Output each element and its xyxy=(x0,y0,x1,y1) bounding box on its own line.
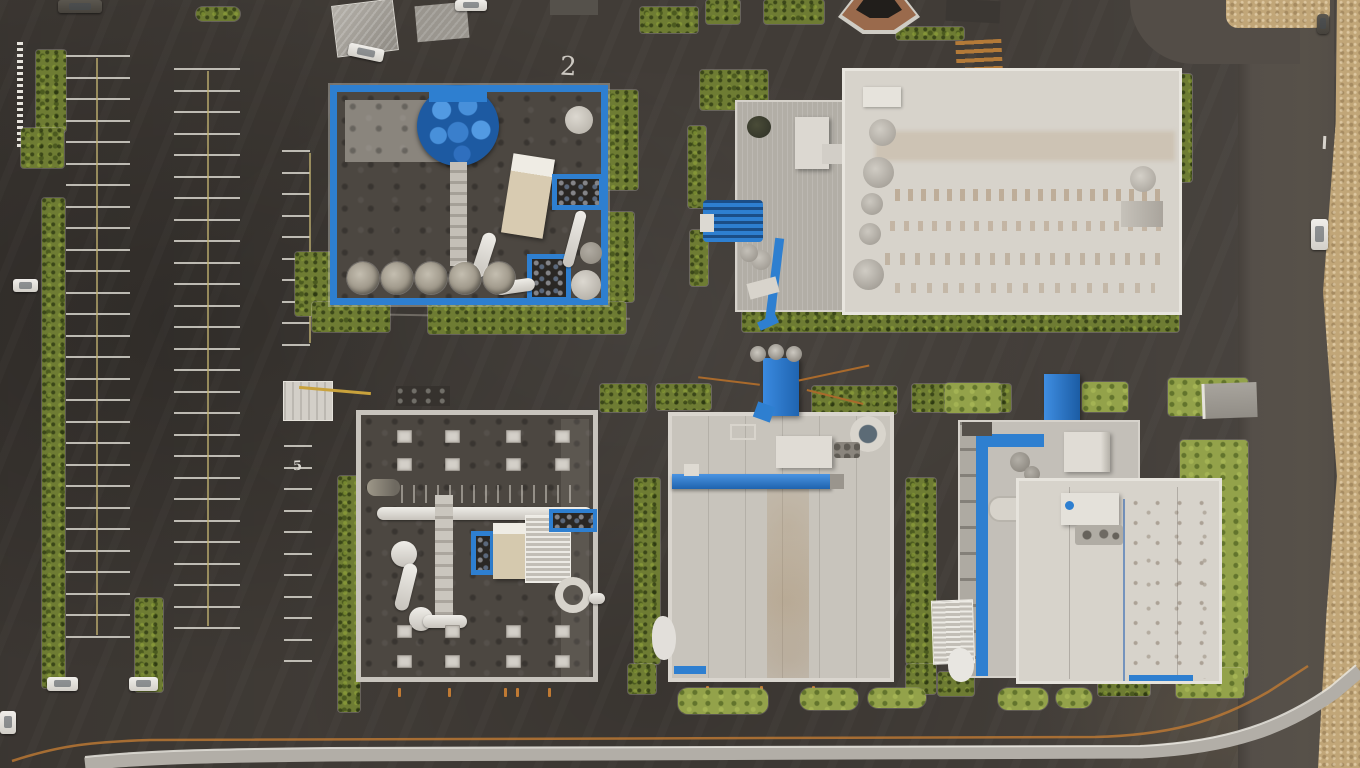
car xyxy=(455,0,487,11)
tower-cylinder xyxy=(786,346,802,362)
skylight xyxy=(555,430,570,443)
hedge xyxy=(640,7,698,33)
blue-rooftop-box xyxy=(1044,374,1080,422)
shed xyxy=(1201,382,1257,419)
dock-tick xyxy=(516,688,519,697)
hedge xyxy=(36,50,66,132)
parking-stripe xyxy=(66,550,130,552)
duct-vertical xyxy=(435,495,453,617)
pipe xyxy=(589,593,605,604)
parking-stripe xyxy=(284,510,312,512)
parking-column xyxy=(282,150,310,346)
parking-stripe xyxy=(66,292,130,294)
parking-stripe xyxy=(66,421,130,423)
roof-speckles xyxy=(1129,497,1217,679)
parking-stripe xyxy=(284,553,312,555)
building-1-roof xyxy=(842,68,1182,315)
rooftop-box xyxy=(684,464,699,476)
hedge xyxy=(428,302,626,334)
parking-stripe xyxy=(66,636,130,638)
parking-stripe xyxy=(66,464,130,466)
parking-stripe xyxy=(66,98,130,100)
parking-stripe xyxy=(66,442,130,444)
skylight xyxy=(506,655,521,668)
skylight xyxy=(445,458,460,471)
rooftop-box xyxy=(1064,432,1110,472)
rooftop-unit xyxy=(580,242,602,264)
parking-stripe xyxy=(282,344,310,346)
dark-awning xyxy=(396,386,450,406)
beam-end-unit xyxy=(830,474,844,489)
silo xyxy=(449,262,481,294)
rooftop-unit xyxy=(571,270,601,300)
parking-stripe xyxy=(284,660,312,662)
vehicle xyxy=(1317,14,1329,34)
rooftop-unit xyxy=(861,193,883,215)
hedge xyxy=(628,664,656,694)
parking-stripe xyxy=(284,574,312,576)
grass-patch xyxy=(800,688,858,710)
hedge xyxy=(42,198,65,688)
silo xyxy=(347,262,379,294)
stall-marking-number: 5 xyxy=(293,459,303,474)
grass-patch xyxy=(1056,688,1092,708)
parking-stripe xyxy=(66,313,130,315)
parking-stripe xyxy=(284,488,312,490)
parking-stripe xyxy=(66,77,130,79)
skylight xyxy=(445,430,460,443)
rooftop-unit xyxy=(863,157,894,188)
pipe xyxy=(393,562,418,612)
dock-tick xyxy=(548,688,551,697)
parking-stripe xyxy=(66,206,130,208)
rooftop-unit xyxy=(740,244,758,262)
hedge xyxy=(606,90,638,190)
roof-stain-row xyxy=(895,283,1155,293)
hedge xyxy=(896,27,964,40)
skylight xyxy=(445,625,460,638)
skylight xyxy=(555,625,570,638)
crosswalk xyxy=(955,39,1003,71)
hedge xyxy=(688,126,706,208)
rooftop-unit xyxy=(869,119,896,146)
hedge xyxy=(196,7,240,21)
parking-stripe xyxy=(174,68,240,70)
shed xyxy=(550,0,598,15)
dock-tick xyxy=(504,688,507,697)
skylight xyxy=(445,655,460,668)
beige-unit xyxy=(501,153,555,239)
parking-stripe xyxy=(66,614,130,616)
blue-trim-segment xyxy=(674,666,706,674)
parking-stripe xyxy=(282,172,310,174)
dock-tick xyxy=(448,688,451,697)
road-marking-building-number: 2 xyxy=(559,52,577,83)
building-2-roof xyxy=(330,85,608,305)
white-equipment-blob xyxy=(948,648,974,682)
rooftop-box xyxy=(863,87,901,107)
gray-tank xyxy=(367,479,400,496)
hedge xyxy=(656,384,711,410)
grass-patch xyxy=(998,688,1048,710)
car xyxy=(1311,219,1328,250)
parking-stripe xyxy=(66,227,130,229)
scene: 2 5 xyxy=(0,0,1360,768)
car xyxy=(129,677,158,691)
parking-stripe xyxy=(284,639,312,641)
hedge xyxy=(764,0,824,24)
roof-stain-row xyxy=(885,253,1165,265)
equipment-cluster xyxy=(834,442,860,458)
grass-patch xyxy=(1082,382,1128,412)
rooftop-unit xyxy=(1130,166,1156,192)
car xyxy=(58,0,102,13)
tree xyxy=(747,116,771,138)
grass-patch xyxy=(868,688,926,708)
parking-divider-line xyxy=(96,58,98,635)
parking-stripe xyxy=(66,270,130,272)
parking-stripe xyxy=(66,55,130,57)
building-5b-roof xyxy=(1016,478,1222,684)
grass-patch xyxy=(945,383,1001,413)
skylight xyxy=(397,655,412,668)
car xyxy=(0,711,16,734)
parking-stripe xyxy=(66,485,130,487)
parking-stripe xyxy=(174,627,240,629)
skylight xyxy=(506,430,521,443)
ring-duct xyxy=(555,577,591,613)
parking-stripe xyxy=(66,141,130,143)
parking-stripe xyxy=(66,356,130,358)
grass-patch xyxy=(678,688,768,714)
tower-cylinder xyxy=(768,344,784,360)
rooftop-box xyxy=(776,436,832,468)
skylight xyxy=(506,625,521,638)
blue-dot-unit xyxy=(1065,501,1074,510)
blue-edge-band xyxy=(976,424,988,676)
dark-equipment xyxy=(962,422,992,436)
parking-stripe xyxy=(66,528,130,530)
white-equipment-blob xyxy=(652,616,676,660)
parking-stripe xyxy=(66,507,130,509)
rooftop-box xyxy=(822,144,842,164)
parking-column xyxy=(66,55,130,638)
parking-stripe xyxy=(284,531,312,533)
dock-tick xyxy=(398,688,401,697)
pipe-elbow xyxy=(391,541,417,567)
equipment-cluster xyxy=(1075,525,1123,545)
blue-equipment-box xyxy=(549,509,597,532)
blue-tank-base xyxy=(429,86,487,102)
parking-divider-line xyxy=(207,71,209,626)
roof-stain-row xyxy=(895,189,1165,201)
hedge xyxy=(21,128,64,168)
car xyxy=(47,677,78,691)
blue-trim-segment xyxy=(1129,675,1193,681)
roof-stain xyxy=(767,486,809,678)
blue-equipment-box xyxy=(552,174,604,210)
roof-stain xyxy=(875,131,1175,161)
parking-stripe xyxy=(284,617,312,619)
hedge xyxy=(312,302,390,332)
parking-column xyxy=(174,68,240,629)
parking-stripe xyxy=(284,596,312,598)
skylight xyxy=(397,625,412,638)
rooftop-unit xyxy=(565,106,593,134)
parking-stripe xyxy=(66,163,130,165)
van xyxy=(13,279,38,292)
parking-stripe xyxy=(282,236,310,238)
skylight xyxy=(397,458,412,471)
blue-roof-seam xyxy=(1123,499,1125,681)
hedge xyxy=(600,384,647,412)
silo xyxy=(483,262,515,294)
dark-structure xyxy=(945,0,1000,23)
parking-stripe xyxy=(66,378,130,380)
hedge xyxy=(706,0,740,24)
parking-stripe xyxy=(66,335,130,337)
parking-stripe xyxy=(66,593,130,595)
hedge xyxy=(606,212,634,302)
tower-cylinder xyxy=(750,346,766,362)
parking-stripe xyxy=(284,445,312,447)
parking-stripe xyxy=(66,249,130,251)
rooftop-unit xyxy=(859,223,881,245)
building-4-roof xyxy=(668,412,894,682)
dock-white-unit xyxy=(700,214,714,232)
parking-stripe xyxy=(282,215,310,217)
skylight xyxy=(506,458,521,471)
parking-stripe xyxy=(66,399,130,401)
skylight xyxy=(555,655,570,668)
rooftop-box xyxy=(730,424,756,440)
parking-stripe xyxy=(66,184,130,186)
parking-stripe xyxy=(282,322,310,324)
roof-duct-vertical xyxy=(450,162,467,266)
skylight xyxy=(397,430,412,443)
parking-stripe xyxy=(66,120,130,122)
vent-row xyxy=(401,485,581,503)
blue-beam xyxy=(988,434,1044,447)
silo xyxy=(415,262,447,294)
silo xyxy=(381,262,413,294)
parking-column xyxy=(284,445,312,662)
building-3-roof xyxy=(356,410,598,682)
rooftop-box xyxy=(1121,201,1163,227)
blue-equipment-box xyxy=(471,531,495,575)
blue-conveyor-beam xyxy=(672,474,832,489)
rooftop-unit xyxy=(853,259,884,290)
parking-stripe xyxy=(66,571,130,573)
parking-stripe xyxy=(282,150,310,152)
parking-stripe xyxy=(282,193,310,195)
skylight xyxy=(555,458,570,471)
